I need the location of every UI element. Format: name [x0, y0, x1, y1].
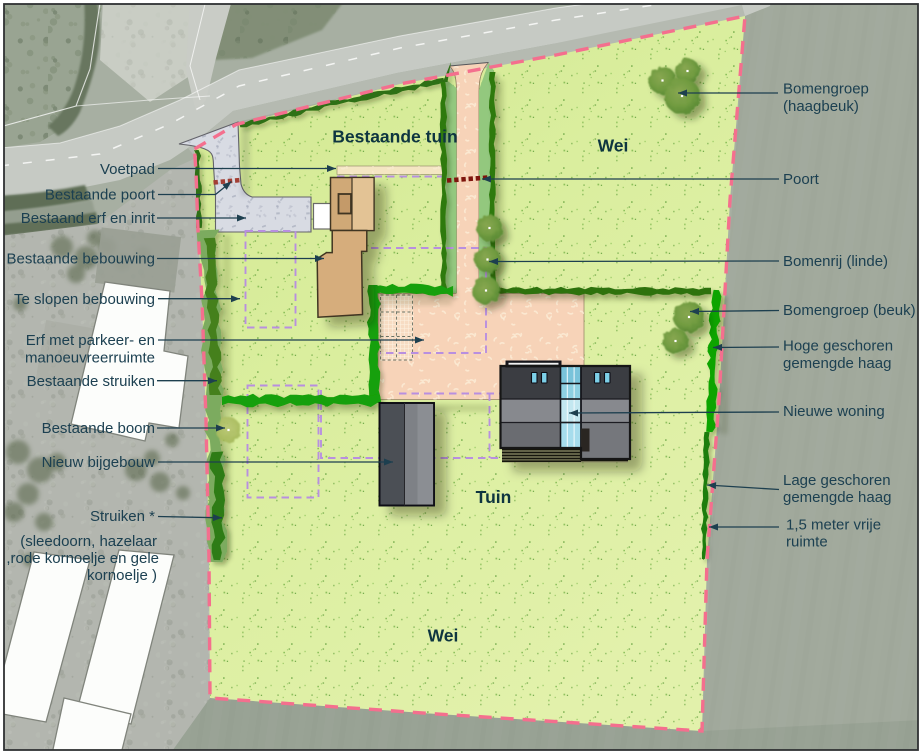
svg-text:ruimte: ruimte	[786, 534, 828, 551]
svg-text:Struiken *: Struiken *	[90, 508, 155, 525]
svg-text:Voetpad: Voetpad	[100, 161, 155, 178]
svg-text:Hoge geschoren: Hoge geschoren	[783, 338, 893, 355]
svg-text:Tuin: Tuin	[476, 487, 512, 507]
svg-text:Bestaand erf en inrit: Bestaand erf en inrit	[21, 210, 156, 227]
svg-text:Poort: Poort	[783, 171, 820, 188]
svg-text:Wei: Wei	[428, 626, 459, 646]
svg-text:1,5 meter vrije: 1,5 meter vrije	[786, 517, 881, 534]
svg-text:Erf met parkeer- en: Erf met parkeer- en	[26, 332, 155, 349]
svg-text:gemengde haag: gemengde haag	[783, 355, 891, 372]
svg-text:manoeuvreerruimte: manoeuvreerruimte	[25, 350, 155, 367]
svg-text:Nieuwe woning: Nieuwe woning	[783, 403, 885, 420]
svg-text:Bestaande bebouwing: Bestaande bebouwing	[7, 251, 155, 268]
svg-text:,rode kornoelje en gele: ,rode kornoelje en gele	[6, 550, 159, 567]
svg-text:(haagbeuk): (haagbeuk)	[783, 98, 859, 115]
svg-text:Lage geschoren: Lage geschoren	[783, 472, 891, 489]
svg-text:Bestaande poort: Bestaande poort	[45, 187, 156, 204]
svg-text:Bestaande boom: Bestaande boom	[42, 420, 155, 437]
svg-text:Te slopen bebouwing: Te slopen bebouwing	[14, 291, 155, 308]
svg-text:Nieuw bijgebouw: Nieuw bijgebouw	[42, 454, 156, 471]
svg-text:Bomengroep: Bomengroep	[783, 81, 869, 98]
svg-text:(sleedoorn, hazelaar: (sleedoorn, hazelaar	[20, 533, 157, 550]
svg-text:Wei: Wei	[598, 136, 629, 156]
svg-text:kornoelje ): kornoelje )	[87, 567, 157, 584]
svg-text:Bomengroep (beuk): Bomengroep (beuk)	[783, 302, 916, 319]
svg-text:Bestaande tuin: Bestaande tuin	[332, 127, 457, 147]
svg-text:Bestaande struiken: Bestaande struiken	[27, 373, 155, 390]
svg-text:gemengde haag: gemengde haag	[783, 489, 891, 506]
svg-text:Bomenrij (linde): Bomenrij (linde)	[783, 253, 888, 270]
